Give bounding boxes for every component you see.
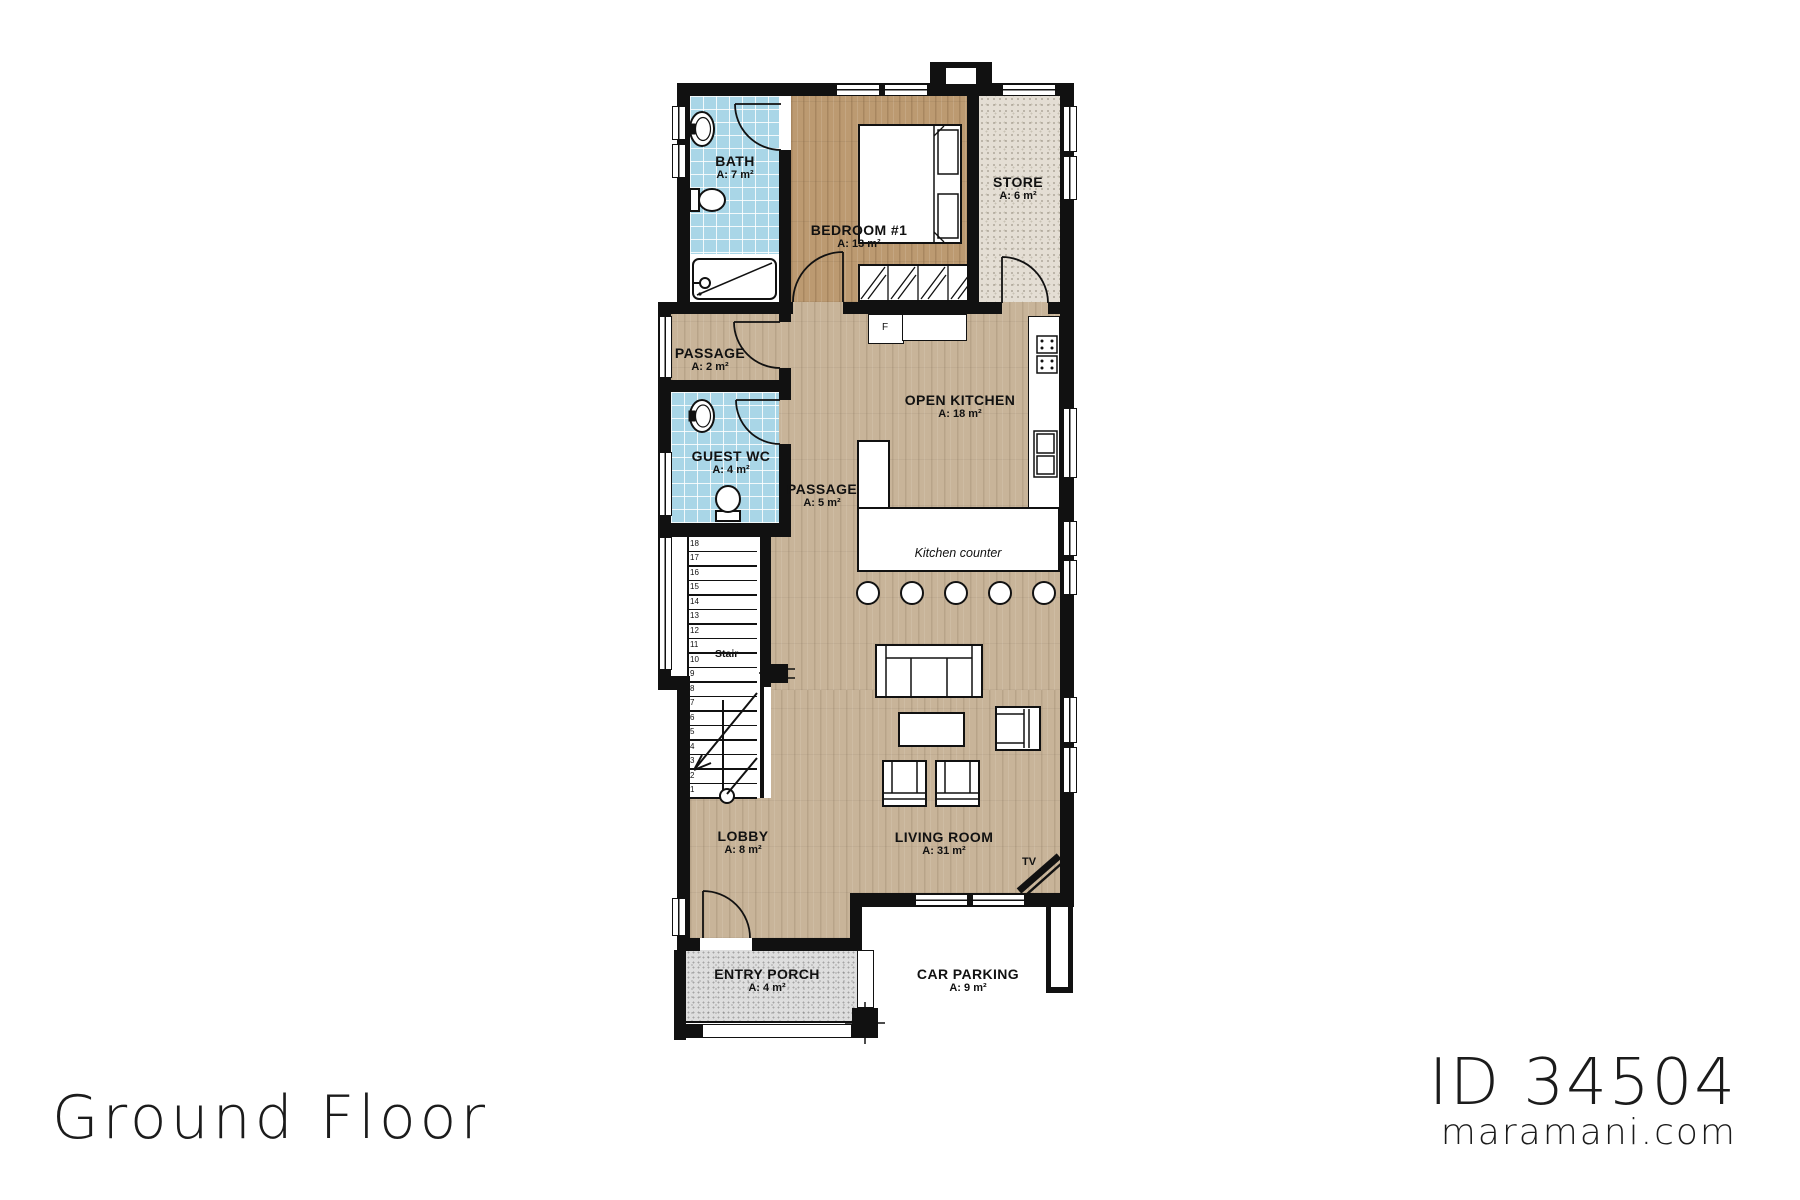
wall [779, 314, 791, 322]
room-area: A: 13 m² [811, 238, 908, 251]
website: maramani.com [1441, 1112, 1737, 1153]
room-label-bath: BATH A: 7 m² [715, 153, 754, 182]
room-name: CAR PARKING [917, 966, 1019, 982]
window [659, 537, 672, 670]
window [659, 452, 672, 516]
wall [779, 150, 791, 302]
window [972, 894, 1025, 906]
toilet-icon [690, 189, 725, 211]
wall [1048, 302, 1074, 314]
chimney-inner [944, 66, 978, 84]
stove-icon [1037, 336, 1057, 373]
window [836, 84, 880, 96]
armchair-details [995, 709, 1029, 748]
room-name: STORE [993, 174, 1043, 190]
room-name: BATH [715, 153, 754, 169]
porch-column [852, 1008, 878, 1038]
wall [658, 523, 791, 537]
plan-symbols [0, 0, 1800, 1200]
wall [658, 302, 791, 314]
floor-title: Ground Floor [52, 1083, 489, 1153]
window [1063, 747, 1077, 793]
window [672, 898, 686, 936]
room-label-open-kitchen: OPEN KITCHEN A: 18 m² [905, 392, 1016, 421]
window [1063, 697, 1077, 743]
wall [658, 380, 791, 392]
up-arrow-icon [694, 693, 757, 794]
window [1063, 156, 1077, 200]
room-area: A: 4 m² [714, 982, 820, 995]
window [1002, 84, 1056, 96]
sink-icon [689, 112, 714, 146]
room-name: ENTRY PORCH [714, 966, 820, 982]
room-name: GUEST WC [692, 448, 771, 464]
kitchen-sink-icon [1034, 431, 1057, 477]
room-label-passage-upper: PASSAGE A: 2 m² [675, 345, 745, 374]
wall [674, 1024, 702, 1038]
room-label-guest-wc: GUEST WC A: 4 m² [692, 448, 771, 477]
room-name: PASSAGE [675, 345, 745, 361]
chair-details [884, 760, 978, 799]
room-label-living-room: LIVING ROOM A: 31 m² [895, 829, 994, 858]
room-label-passage-main: PASSAGE A: 5 m² [787, 481, 857, 510]
toilet-icon [716, 486, 740, 521]
shower-icon [693, 259, 776, 299]
room-area: A: 5 m² [787, 497, 857, 510]
room-label-bedroom1: BEDROOM #1 A: 13 m² [811, 222, 908, 251]
room-area: A: 6 m² [993, 190, 1043, 203]
wall [862, 893, 1074, 907]
stair-label: Stair [715, 648, 738, 660]
stair-rail-wall [760, 687, 764, 798]
room-area: A: 31 m² [895, 845, 994, 858]
wall [752, 938, 862, 951]
window [672, 144, 686, 178]
fridge-label: F [882, 322, 888, 333]
db-box [766, 664, 788, 683]
kitchen-counter-label: Kitchen counter [915, 546, 1002, 560]
window [672, 106, 686, 140]
wall [1068, 907, 1073, 987]
room-name: LOBBY [718, 828, 769, 844]
sofa-details [886, 645, 972, 697]
bed-details [934, 126, 958, 242]
wall [791, 302, 793, 314]
wardrobe-hatch [861, 264, 976, 302]
room-name: BEDROOM #1 [811, 222, 908, 238]
floor-plan: 123456789101112131415161718 [0, 0, 1800, 1200]
room-label-entry-porch: ENTRY PORCH A: 4 m² [714, 966, 820, 995]
wall [850, 893, 862, 951]
wall [1046, 987, 1073, 993]
room-area: A: 9 m² [917, 982, 1019, 995]
room-name: PASSAGE [787, 481, 857, 497]
window [1063, 408, 1077, 478]
room-area: A: 8 m² [718, 844, 769, 857]
wall [843, 302, 1002, 314]
wall [1046, 907, 1051, 987]
room-name: LIVING ROOM [895, 829, 994, 845]
room-name: OPEN KITCHEN [905, 392, 1016, 408]
window [884, 84, 928, 96]
window [1063, 521, 1077, 556]
room-label-store: STORE A: 6 m² [993, 174, 1043, 203]
sink-icon [689, 400, 714, 432]
wall [658, 676, 690, 690]
room-label-car-parking: CAR PARKING A: 9 m² [917, 966, 1019, 995]
window [659, 316, 672, 378]
room-area: A: 2 m² [675, 361, 745, 374]
plan-id: ID 34504 [1429, 1046, 1737, 1120]
room-area: A: 18 m² [905, 408, 1016, 421]
window [1063, 106, 1077, 152]
room-area: A: 7 m² [715, 169, 754, 182]
porch-edge [686, 1021, 857, 1023]
wall [967, 96, 979, 302]
window [915, 894, 968, 906]
room-area: A: 4 m² [692, 464, 771, 477]
tv-label: TV [1022, 856, 1036, 868]
room-label-lobby: LOBBY A: 8 m² [718, 828, 769, 857]
window [1063, 560, 1077, 595]
